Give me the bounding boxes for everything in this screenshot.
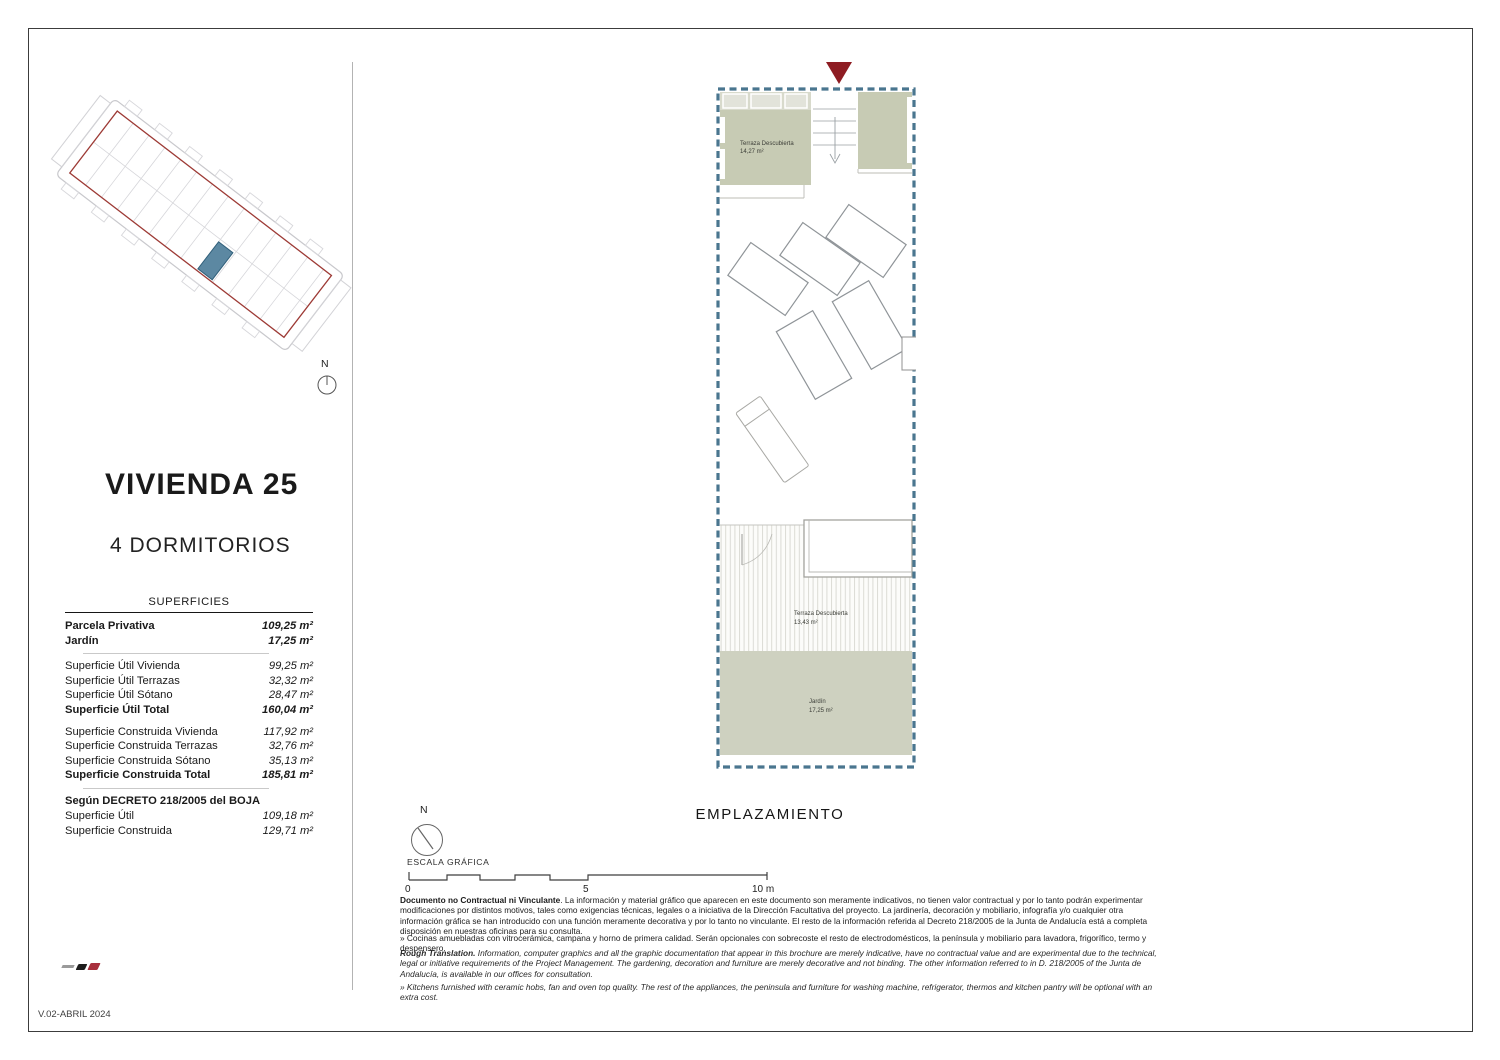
table-separator bbox=[83, 788, 269, 789]
version-label: V.02-ABRIL 2024 bbox=[38, 1009, 111, 1020]
floor-plan: Terraza Descubierta 14,27 m² Terraza Des… bbox=[716, 87, 916, 769]
garden-label: Jardín bbox=[809, 699, 826, 705]
legal-es-lead: Documento no Contractual ni Vinculante bbox=[400, 895, 560, 905]
table-row: Superficie Construida Total 185,81 m² bbox=[65, 768, 313, 783]
wall-opening bbox=[720, 149, 725, 179]
entrance-marker-icon bbox=[826, 62, 852, 84]
table-row: Superficie Útil 109,18 m² bbox=[65, 809, 313, 824]
scale-bar bbox=[407, 868, 773, 886]
logo-mark-grey bbox=[61, 965, 74, 968]
legal-en-body: Information, computer graphics and all t… bbox=[400, 948, 1157, 979]
brand-logo bbox=[62, 963, 99, 970]
scale-tick-5: 5 bbox=[583, 884, 589, 895]
scale-tick-10: 10 m bbox=[752, 884, 774, 895]
terrace-top-area bbox=[720, 110, 811, 185]
site-north-compass-icon bbox=[316, 373, 340, 397]
kitchen-note-en: » Kitchens furnished with ceramic hobs, … bbox=[400, 982, 1168, 1002]
scale-tick-0: 0 bbox=[405, 884, 411, 895]
boundary-notch bbox=[902, 337, 916, 370]
garden-edge-strip bbox=[720, 755, 912, 764]
table-row: Superficie Útil Vivienda 99,25 m² bbox=[65, 659, 313, 674]
table-row: Superficie Útil Sótano 28,47 m² bbox=[65, 688, 313, 703]
surfaces-table-header: SUPERFICIES bbox=[65, 596, 313, 613]
table-separator bbox=[83, 653, 269, 654]
unit-title: VIVIENDA 25 bbox=[105, 468, 298, 502]
terrace-top-label: Terraza Descubierta bbox=[740, 141, 794, 147]
table-row: Superficie Construida 129,71 m² bbox=[65, 824, 313, 839]
footer-north-label: N bbox=[420, 804, 428, 816]
terrace-bottom-label: Terraza Descubierta bbox=[794, 611, 848, 617]
table-row: Jardín 17,25 m² bbox=[65, 634, 313, 649]
planter-boxes bbox=[723, 94, 807, 108]
wall-opening bbox=[907, 97, 912, 163]
decreto-heading: Según DECRETO 218/2005 del BOJA bbox=[65, 794, 313, 809]
emplazamiento-title: EMPLAZAMIENTO bbox=[640, 806, 900, 823]
void-inset bbox=[804, 520, 912, 577]
table-row: Superficie Útil Terrazas 32,32 m² bbox=[65, 674, 313, 689]
site-plan bbox=[40, 75, 360, 365]
table-row: Superficie Útil Total 160,04 m² bbox=[65, 703, 313, 718]
table-row: Superficie Construida Terrazas 32,76 m² bbox=[65, 739, 313, 754]
logo-mark-black bbox=[76, 964, 88, 970]
legal-text-en: Rough Translation. Information, computer… bbox=[400, 948, 1168, 979]
brochure-page: N VIVIENDA 25 4 DORMITORIOS SUPERFICIES … bbox=[0, 0, 1500, 1060]
logo-mark-red bbox=[87, 963, 100, 970]
legal-en-lead: Rough Translation. bbox=[400, 948, 475, 958]
footer-north-compass-icon bbox=[410, 822, 446, 858]
terrace-bottom-area-value: 13,43 m² bbox=[794, 620, 818, 626]
wall-opening bbox=[720, 117, 725, 143]
table-row: Superficie Construida Sótano 35,13 m² bbox=[65, 754, 313, 769]
legal-text-es: Documento no Contractual ni Vinculante. … bbox=[400, 895, 1166, 937]
table-row: Parcela Privativa 109,25 m² bbox=[65, 619, 313, 634]
surfaces-table: SUPERFICIES Parcela Privativa 109,25 m² … bbox=[65, 596, 313, 838]
garden-area-value: 17,25 m² bbox=[809, 708, 833, 714]
terrace-top-area-value: 14,27 m² bbox=[740, 149, 764, 155]
table-row: Superficie Construida Vivienda 117,92 m² bbox=[65, 725, 313, 740]
terrace-top-right-area bbox=[858, 92, 912, 169]
site-north-label: N bbox=[321, 358, 329, 370]
unit-subtitle: 4 DORMITORIOS bbox=[110, 534, 291, 558]
scale-label: ESCALA GRÁFICA bbox=[407, 857, 489, 867]
site-plot-outline bbox=[56, 99, 345, 352]
